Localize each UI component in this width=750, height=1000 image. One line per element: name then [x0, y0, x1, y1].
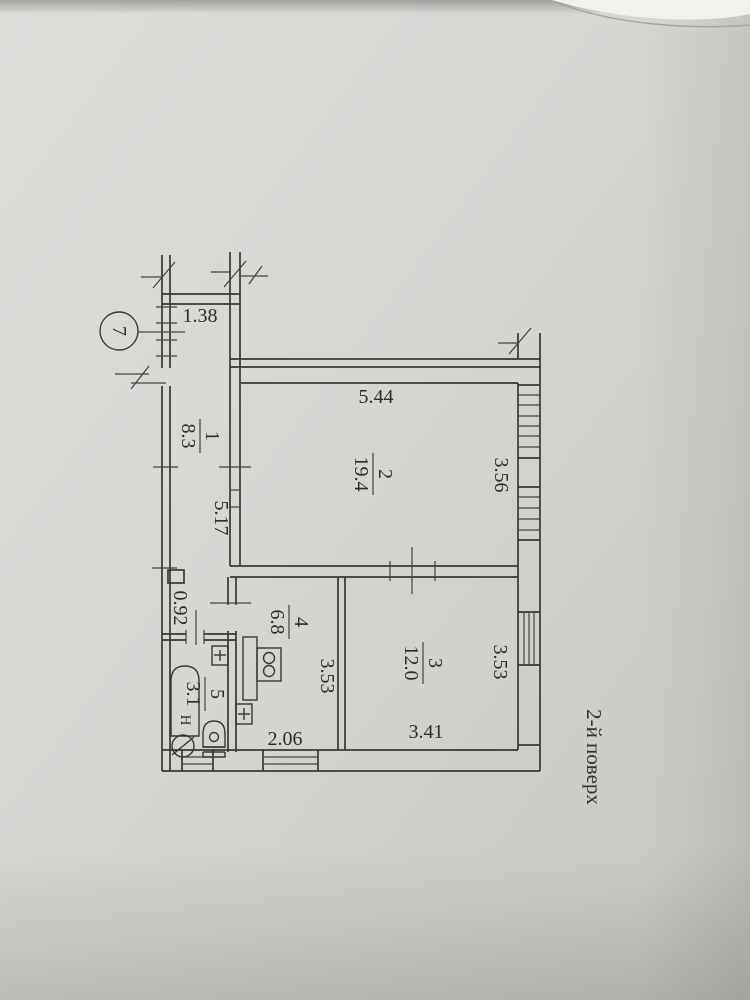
room-4-number: 4 — [290, 617, 312, 627]
dim-room3-depth: 3.53 — [489, 645, 511, 680]
room-3-number: 3 — [424, 658, 446, 668]
room-4-area: 6.8 — [266, 610, 288, 635]
dim-corridor-width: 0.92 — [169, 591, 191, 626]
floor-plan-canvas: 7 1.38 5.44 2.06 3.41 5.17 0.92 3.56 3.5… — [0, 0, 750, 1000]
room-2-area: 19.4 — [350, 457, 372, 492]
floor-plan-photo: 7 1.38 5.44 2.06 3.41 5.17 0.92 3.56 3.5… — [0, 0, 750, 1000]
paper-background — [0, 0, 750, 1000]
room-1-area: 8.3 — [177, 424, 199, 449]
room-1-number: 1 — [201, 431, 223, 441]
floor-label: 2-й поверх — [582, 709, 606, 805]
dim-room2-depth: 3.56 — [490, 458, 512, 493]
dim-room2-width: 5.44 — [359, 386, 394, 408]
bath-mark: Н — [177, 715, 193, 726]
dim-kitchen-width: 2.06 — [268, 728, 303, 750]
dim-room3-width: 3.41 — [409, 721, 444, 743]
room-5-number: 5 — [206, 689, 228, 699]
dim-hall-top-width: 1.38 — [183, 305, 218, 327]
room-3-area: 12.0 — [400, 646, 422, 681]
room-2-number: 2 — [374, 469, 396, 479]
room-5-area: 3.1 — [182, 682, 204, 707]
unit-marker-number: 7 — [108, 326, 130, 336]
dim-kitchen-depth: 3.53 — [316, 659, 338, 694]
dim-hall-length: 5.17 — [210, 501, 232, 536]
